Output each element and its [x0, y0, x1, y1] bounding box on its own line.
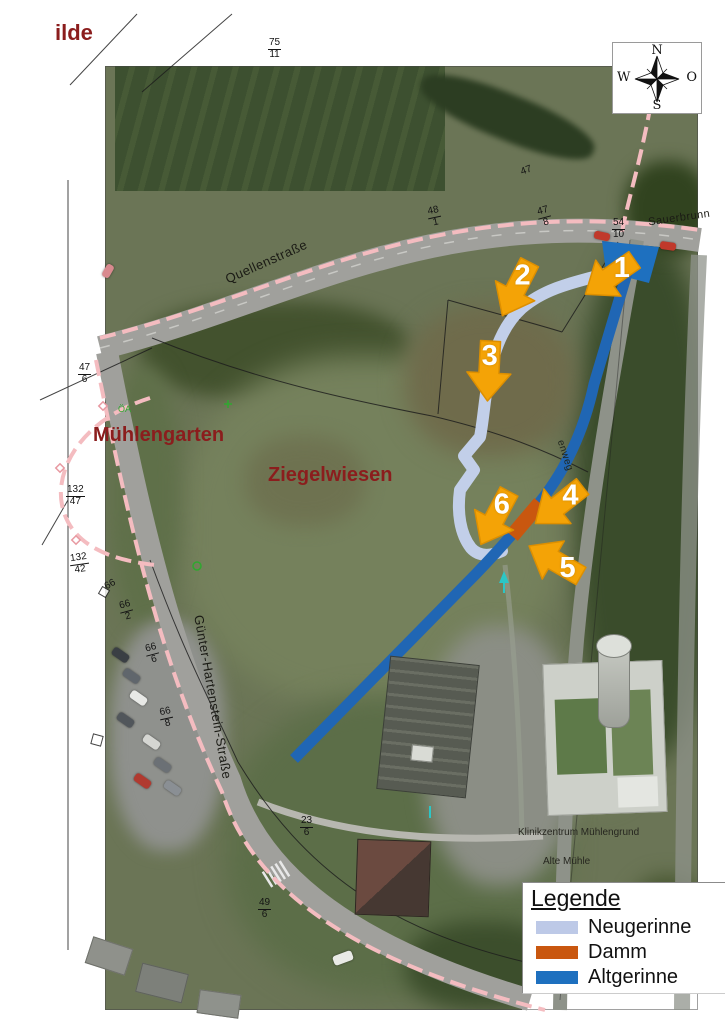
- arrow-number: 5: [545, 552, 591, 585]
- parcel-number: 7511: [268, 38, 281, 60]
- legend-item-damm: Damm: [523, 940, 725, 965]
- margin-label-fragment: ilde: [55, 20, 93, 46]
- legend-label: Altgerinne: [588, 966, 678, 989]
- poi-label-klinikzentrum: Klinikzentrum Mühlengrund: [518, 827, 639, 838]
- tower-top: [596, 634, 632, 658]
- parcel-number: 13247: [66, 485, 85, 507]
- legend-item-altgerinne: Altgerinne: [523, 965, 725, 990]
- map-canvas: ilde Mühlengarten Ziegelwiesen Quellenst…: [0, 0, 725, 1024]
- legend-item-neugerinne: Neugerinne: [523, 915, 725, 940]
- legend-swatch-neugerinne: [536, 921, 578, 934]
- parcel-number: 236: [300, 816, 313, 838]
- parcel-number: 13242: [69, 552, 91, 576]
- arrow-number: 6: [479, 489, 525, 522]
- area-label-ziegelwiesen: Ziegelwiesen: [268, 464, 393, 487]
- arrow-number: 2: [500, 260, 546, 293]
- rooftop-structure: [410, 744, 434, 762]
- legend-swatch-altgerinne: [536, 971, 578, 984]
- parcel-number: 476: [78, 363, 91, 385]
- legend-label: Damm: [588, 941, 647, 964]
- solar-roof-building: [376, 656, 480, 799]
- area-label-muehlengarten: Mühlengarten: [93, 424, 224, 447]
- arrow-annotation-3: 3: [464, 338, 513, 404]
- arrow-number: 4: [547, 480, 593, 513]
- poi-label-alte-muehle: Alte Mühle: [543, 856, 590, 867]
- arrow-number: 1: [599, 252, 645, 285]
- legend-title: Legende: [531, 885, 725, 912]
- red-roof-building: [355, 839, 432, 918]
- compass-star-icon: [613, 43, 701, 113]
- footpath-2: [505, 565, 522, 835]
- survey-mark-label: ÖA: [118, 404, 131, 414]
- compass-rose: N S W O: [612, 42, 702, 114]
- parcel-number: 496: [258, 898, 271, 920]
- parcel-number: 5410: [612, 218, 625, 240]
- white-wing: [617, 776, 658, 807]
- arrow-number: 3: [467, 340, 513, 373]
- legend-box: Legende Neugerinne Damm Altgerinne: [522, 882, 725, 994]
- legend-swatch-damm: [536, 946, 578, 959]
- legend-label: Neugerinne: [588, 916, 691, 939]
